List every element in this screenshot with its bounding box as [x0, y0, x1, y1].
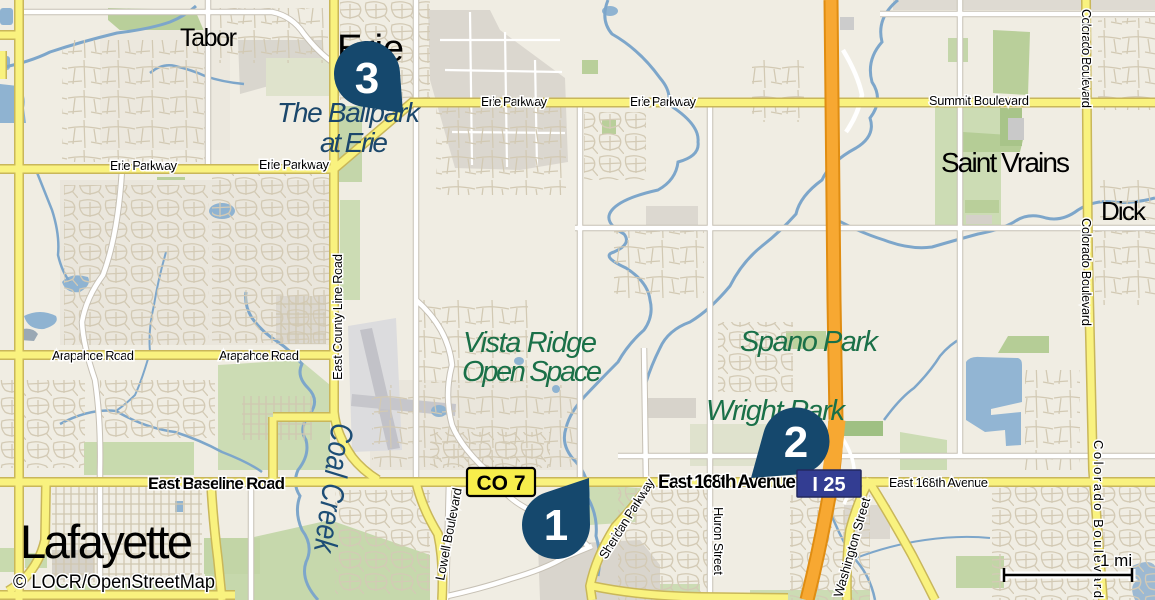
- svg-text:at Erie: at Erie: [320, 127, 388, 158]
- svg-text:Arapahoe Road: Arapahoe Road: [219, 348, 299, 363]
- svg-text:CO 7: CO 7: [476, 472, 525, 495]
- svg-text:Erie Parkway: Erie Parkway: [259, 157, 330, 172]
- svg-text:Tabor: Tabor: [180, 24, 237, 52]
- svg-text:Summit Boulevard: Summit Boulevard: [929, 93, 1029, 108]
- svg-text:1: 1: [544, 501, 568, 550]
- svg-text:Colorado Boulevard: Colorado Boulevard: [1079, 9, 1094, 108]
- svg-text:1 mi: 1 mi: [1100, 551, 1132, 570]
- svg-text:3: 3: [355, 54, 379, 103]
- svg-text:Erie Parkway: Erie Parkway: [110, 158, 178, 173]
- svg-text:Lafayette: Lafayette: [20, 515, 193, 568]
- svg-text:Saint Vrains: Saint Vrains: [941, 147, 1070, 178]
- svg-text:Erie Parkway: Erie Parkway: [481, 94, 548, 109]
- svg-text:Huron Street: Huron Street: [711, 507, 726, 575]
- svg-text:Colorado Boulevard: Colorado Boulevard: [1079, 218, 1094, 326]
- svg-text:Spano Park: Spano Park: [740, 326, 880, 358]
- svg-text:East 168th Avenue: East 168th Avenue: [889, 475, 988, 490]
- svg-text:© LOCR/OpenStreetMap: © LOCR/OpenStreetMap: [13, 572, 215, 593]
- svg-text:Arapahoe Road: Arapahoe Road: [52, 348, 134, 363]
- svg-text:2: 2: [784, 418, 808, 467]
- svg-text:Open Space: Open Space: [462, 356, 602, 388]
- svg-text:East Baseline Road: East Baseline Road: [148, 474, 285, 493]
- svg-text:Vista Ridge: Vista Ridge: [463, 327, 597, 359]
- svg-text:Dick: Dick: [1101, 196, 1147, 226]
- svg-text:Erie Parkway: Erie Parkway: [630, 94, 697, 109]
- svg-text:East County Line Road: East County Line Road: [330, 254, 345, 380]
- svg-text:I 25: I 25: [812, 474, 845, 496]
